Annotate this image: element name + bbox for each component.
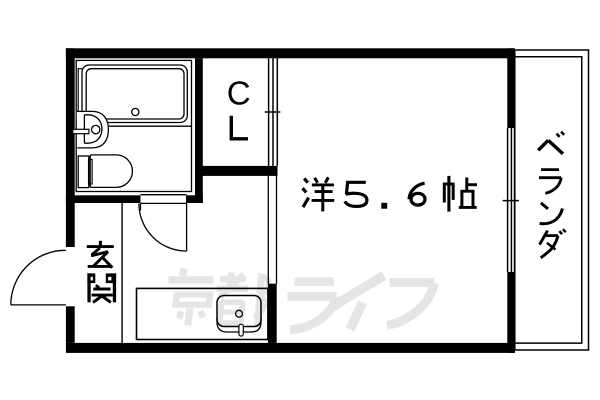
svg-text:C: C <box>227 74 251 111</box>
